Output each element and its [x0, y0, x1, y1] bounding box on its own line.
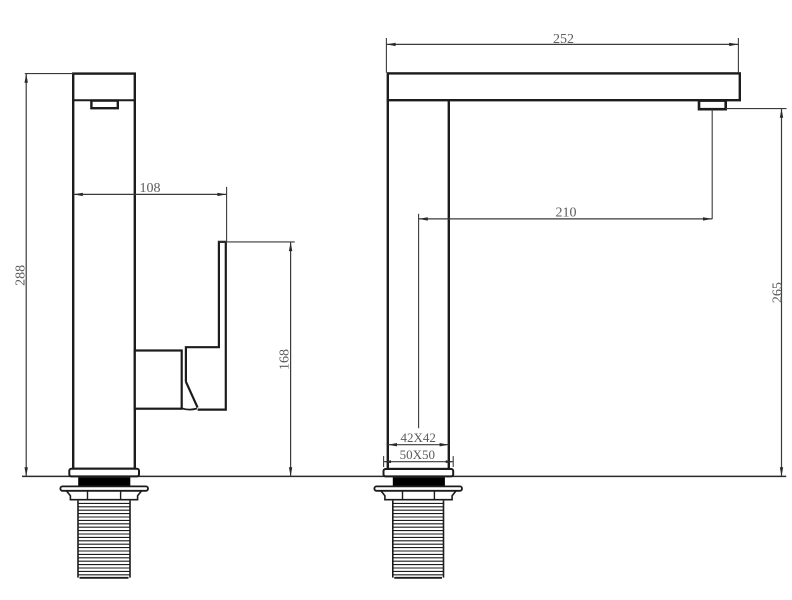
svg-text:210: 210	[556, 205, 577, 220]
svg-text:288: 288	[13, 265, 28, 286]
svg-text:50X50: 50X50	[400, 447, 435, 462]
svg-text:108: 108	[140, 181, 161, 196]
svg-text:42X42: 42X42	[401, 430, 436, 445]
svg-text:168: 168	[277, 349, 292, 370]
svg-text:265: 265	[771, 282, 786, 303]
svg-text:252: 252	[553, 32, 574, 47]
